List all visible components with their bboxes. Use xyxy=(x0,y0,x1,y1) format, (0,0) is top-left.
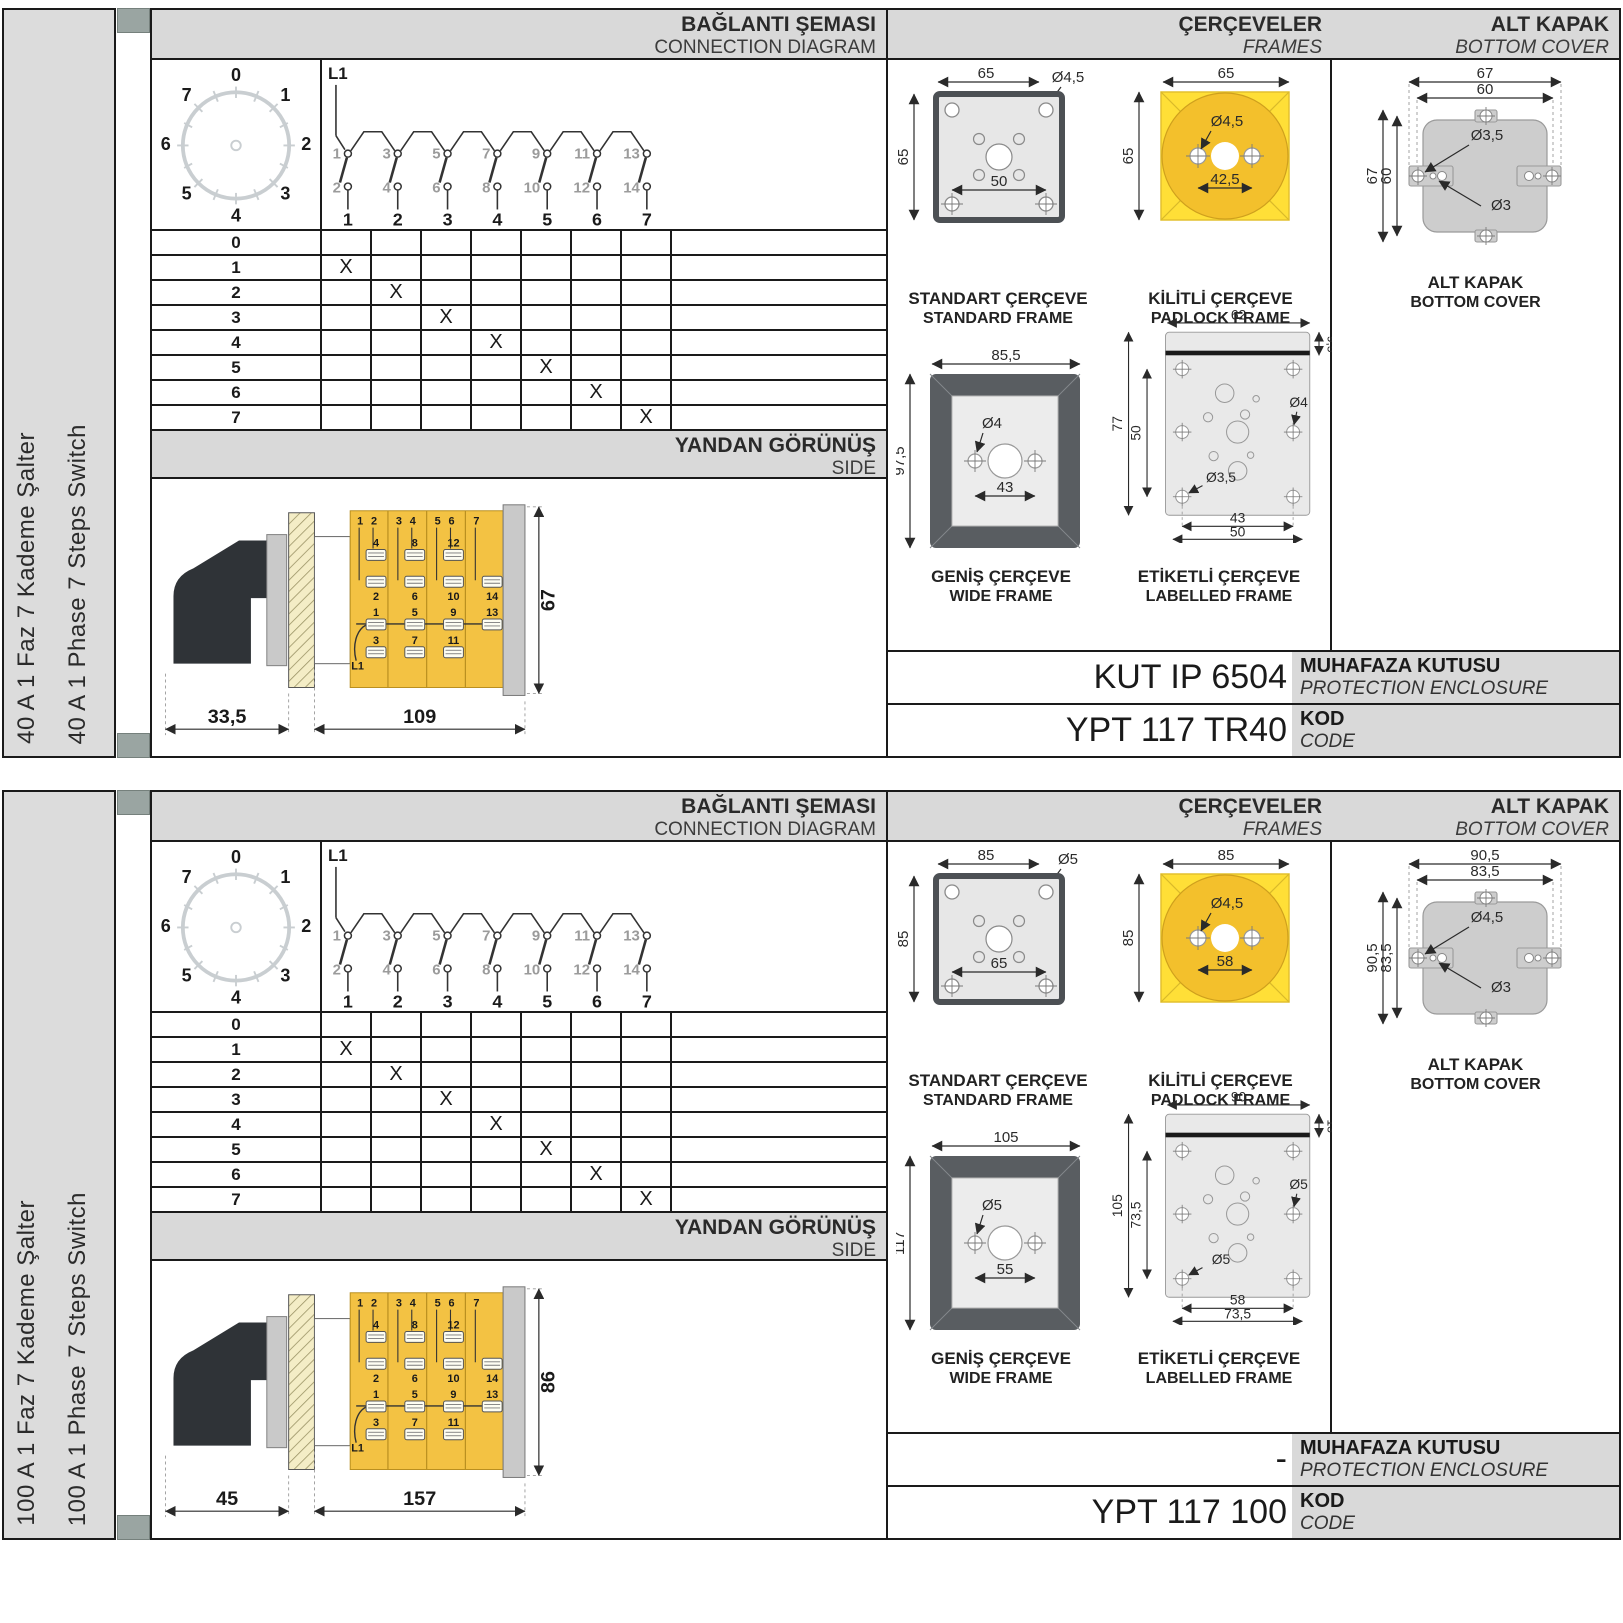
svg-text:2: 2 xyxy=(373,591,379,603)
enclosure-row: - MUHAFAZA KUTUSU PROTECTION ENCLOSURE xyxy=(888,1432,1619,1485)
svg-text:85: 85 xyxy=(896,931,912,948)
product-label-tr: 40 A 1 Faz 7 Kademe Şalter xyxy=(13,432,41,744)
standard-frame-caption: STANDART ÇERÇEVE STANDARD FRAME xyxy=(888,288,1108,328)
svg-text:3: 3 xyxy=(396,1298,402,1310)
svg-text:Ø4: Ø4 xyxy=(982,415,1002,432)
svg-text:Ø3,5: Ø3,5 xyxy=(1471,127,1504,144)
svg-text:85: 85 xyxy=(1123,930,1137,947)
svg-text:14: 14 xyxy=(486,1373,498,1385)
product-label-en: 100 A 1 Phase 7 Steps Switch xyxy=(64,1192,92,1526)
svg-text:14: 14 xyxy=(486,591,498,603)
svg-text:Ø5: Ø5 xyxy=(982,1197,1002,1214)
svg-text:65: 65 xyxy=(991,955,1008,972)
svg-text:4: 4 xyxy=(410,1298,416,1310)
table-row: 1X xyxy=(152,1036,886,1061)
svg-text:6: 6 xyxy=(592,991,602,1011)
svg-text:7: 7 xyxy=(412,1417,418,1429)
svg-text:55: 55 xyxy=(997,1261,1014,1278)
svg-text:Ø4,5: Ø4,5 xyxy=(1211,113,1244,130)
svg-text:7: 7 xyxy=(473,516,479,528)
table-row: 0 xyxy=(152,1011,886,1036)
svg-text:Ø4,5: Ø4,5 xyxy=(1211,895,1244,912)
svg-text:6: 6 xyxy=(412,591,418,603)
step-table: 0 1X 2X 3X 4X 5X 6X 7X xyxy=(152,1011,886,1211)
svg-text:2: 2 xyxy=(373,1373,379,1385)
enclosure-code: - xyxy=(888,1434,1292,1485)
table-row: 2X xyxy=(152,1061,886,1086)
svg-text:4: 4 xyxy=(382,962,391,979)
svg-text:1: 1 xyxy=(280,867,290,887)
cover-header: ALT KAPAK BOTTOM COVER xyxy=(1332,10,1619,60)
svg-text:65: 65 xyxy=(896,149,912,166)
svg-text:Ø3: Ø3 xyxy=(1491,979,1511,996)
svg-text:5: 5 xyxy=(182,184,192,204)
switch-section: 100 A 1 Faz 7 Kademe Şalter 100 A 1 Phas… xyxy=(0,790,1623,1540)
step-mark: X xyxy=(372,281,422,304)
end-cap xyxy=(503,1287,525,1478)
labelled-frame-figure: 90 13 xyxy=(1110,1092,1332,1325)
svg-text:4: 4 xyxy=(373,1320,379,1332)
svg-text:12: 12 xyxy=(573,962,590,979)
svg-text:10: 10 xyxy=(447,1373,459,1385)
svg-text:14: 14 xyxy=(623,180,640,197)
svg-text:85,5: 85,5 xyxy=(991,348,1020,364)
dim-body: 157 xyxy=(403,1488,436,1510)
svg-text:3: 3 xyxy=(396,516,402,528)
output-numbers: 1 2 3 4 5 6 7 xyxy=(343,991,652,1011)
svg-text:6: 6 xyxy=(432,180,440,197)
corner-marker xyxy=(117,790,150,815)
product-code: YPT 117 100 xyxy=(888,1487,1292,1538)
svg-text:90,5: 90,5 xyxy=(1470,850,1499,864)
circuit-chain xyxy=(336,85,644,151)
standard-frame-figure: 65 Ø4,5 xyxy=(896,66,1101,286)
svg-text:Ø4,5: Ø4,5 xyxy=(1052,69,1085,86)
svg-text:1: 1 xyxy=(357,516,363,528)
phase-label: L1 xyxy=(328,64,348,83)
svg-text:4: 4 xyxy=(410,516,416,528)
step-mark: X xyxy=(322,256,372,279)
dim-height: 67 xyxy=(538,589,560,611)
svg-text:43: 43 xyxy=(997,479,1014,496)
svg-text:9: 9 xyxy=(450,1389,456,1401)
svg-text:11: 11 xyxy=(574,146,590,163)
table-row: 4X xyxy=(152,329,886,354)
svg-text:11: 11 xyxy=(448,635,460,647)
datasheet-panel: BAĞLANTI ŞEMASI CONNECTION DIAGRAM xyxy=(150,790,1621,1540)
step-mark: X xyxy=(472,331,522,354)
datasheet-panel: BAĞLANTI ŞEMASI CONNECTION DIAGRAM xyxy=(150,8,1621,758)
side-view: L1 12 4 2 1 3 xyxy=(152,1261,886,1538)
dim-handle: 33,5 xyxy=(208,706,247,728)
svg-text:3: 3 xyxy=(443,991,453,1011)
right-columns: ÇERÇEVELER FRAMES ALT KAPAK BOTTOM COVER… xyxy=(888,792,1619,1538)
enclosure-label: MUHAFAZA KUTUSU PROTECTION ENCLOSURE xyxy=(1292,1434,1619,1485)
svg-text:1: 1 xyxy=(343,991,353,1011)
dial-cell: 0 1 2 3 4 5 6 7 xyxy=(152,60,322,229)
svg-text:7: 7 xyxy=(412,635,418,647)
svg-text:65: 65 xyxy=(978,66,995,82)
dial-cell: 0 1 2 3 4 5 6 7 xyxy=(152,842,322,1011)
svg-text:5: 5 xyxy=(542,991,552,1011)
svg-text:2: 2 xyxy=(371,1298,377,1310)
svg-text:6: 6 xyxy=(449,516,455,528)
frames-header: ÇERÇEVELER FRAMES xyxy=(888,792,1332,842)
frames-header: ÇERÇEVELER FRAMES xyxy=(888,10,1332,60)
svg-text:6: 6 xyxy=(449,1298,455,1310)
bottom-cover-caption: ALT KAPAK BOTTOM COVER xyxy=(1332,272,1619,312)
table-row: 7X xyxy=(152,404,886,429)
output-numbers: 1 2 3 4 5 6 7 xyxy=(343,209,652,229)
table-row: 5X xyxy=(152,1136,886,1161)
svg-text:13: 13 xyxy=(1324,1120,1332,1134)
svg-text:7: 7 xyxy=(473,1298,479,1310)
product-label-en: 40 A 1 Phase 7 Steps Switch xyxy=(64,424,92,744)
svg-text:58: 58 xyxy=(1217,953,1234,970)
svg-text:2: 2 xyxy=(301,916,311,936)
side-view-header: YANDAN GÖRÜNÜŞ SIDE xyxy=(152,1211,886,1261)
svg-text:4: 4 xyxy=(382,180,391,197)
table-row: 7X xyxy=(152,1186,886,1211)
svg-text:3: 3 xyxy=(373,1417,379,1429)
table-row: 3X xyxy=(152,304,886,329)
svg-text:3: 3 xyxy=(382,146,390,163)
svg-text:85: 85 xyxy=(1218,848,1235,864)
diagram-row: 0 1 2 3 4 5 6 7 L1 xyxy=(152,60,886,229)
svg-text:6: 6 xyxy=(161,134,171,154)
enclosure-label: MUHAFAZA KUTUSU PROTECTION ENCLOSURE xyxy=(1292,652,1619,703)
svg-text:Ø3: Ø3 xyxy=(1491,197,1511,214)
enclosure-row: KUT IP 6504 MUHAFAZA KUTUSU PROTECTION E… xyxy=(888,650,1619,703)
svg-text:9: 9 xyxy=(532,146,540,163)
bottom-cover-figure: 90,5 83,5 xyxy=(1357,850,1597,1050)
svg-text:Ø5: Ø5 xyxy=(1289,1176,1308,1192)
side-view-header: YANDAN GÖRÜNÜŞ SIDE xyxy=(152,429,886,479)
cover-header: ALT KAPAK BOTTOM COVER xyxy=(1332,792,1619,842)
svg-text:4: 4 xyxy=(231,205,241,225)
svg-text:4: 4 xyxy=(492,209,502,229)
svg-text:5: 5 xyxy=(182,966,192,986)
svg-text:4: 4 xyxy=(373,538,379,550)
svg-text:7: 7 xyxy=(482,928,490,945)
svg-text:9: 9 xyxy=(450,607,456,619)
phase-label: L1 xyxy=(328,846,348,865)
svg-text:105: 105 xyxy=(1110,1194,1125,1217)
svg-text:2: 2 xyxy=(393,209,403,229)
code-label: KOD CODE xyxy=(1292,705,1619,756)
right-columns: ÇERÇEVELER FRAMES ALT KAPAK BOTTOM COVER… xyxy=(888,10,1619,756)
svg-text:13: 13 xyxy=(623,146,640,163)
svg-text:1: 1 xyxy=(343,209,353,229)
svg-text:73,5: 73,5 xyxy=(1224,1306,1251,1322)
svg-text:1: 1 xyxy=(357,1298,363,1310)
dim-handle: 45 xyxy=(216,1488,238,1510)
svg-text:8: 8 xyxy=(482,962,490,979)
svg-text:7: 7 xyxy=(182,85,192,105)
svg-text:4: 4 xyxy=(231,987,241,1007)
svg-text:10: 10 xyxy=(524,180,541,197)
svg-text:65: 65 xyxy=(1123,148,1137,165)
svg-text:5: 5 xyxy=(432,928,440,945)
svg-text:Ø5: Ø5 xyxy=(1058,851,1078,868)
svg-text:11: 11 xyxy=(574,928,590,945)
svg-text:2: 2 xyxy=(393,991,403,1011)
wide-frame-figure: 85,5 Ø4 97,5 xyxy=(896,348,1106,560)
step-mark: X xyxy=(572,381,622,404)
svg-text:Ø4,5: Ø4,5 xyxy=(1471,909,1504,926)
step-mark: X xyxy=(622,1188,672,1211)
shaft xyxy=(314,537,350,664)
svg-text:9,5: 9,5 xyxy=(1324,336,1332,353)
labelled-frame-caption: ETİKETLİ ÇERÇEVE LABELLED FRAME xyxy=(1106,566,1332,606)
svg-text:13: 13 xyxy=(486,1389,498,1401)
svg-text:105: 105 xyxy=(993,1130,1018,1146)
svg-text:5: 5 xyxy=(412,1389,418,1401)
svg-text:3: 3 xyxy=(443,209,453,229)
side-view-figure: L1 12 4 2 1 3 xyxy=(152,1261,886,1540)
svg-text:7: 7 xyxy=(642,209,652,229)
svg-text:7: 7 xyxy=(642,991,652,1011)
step-mark: X xyxy=(622,406,672,429)
svg-text:77: 77 xyxy=(1110,416,1125,432)
standard-frame-caption: STANDART ÇERÇEVE STANDARD FRAME xyxy=(888,1070,1108,1110)
switch-handle xyxy=(173,1317,286,1448)
svg-text:12: 12 xyxy=(447,1320,459,1332)
product-code: YPT 117 TR40 xyxy=(888,705,1292,756)
svg-text:2: 2 xyxy=(371,516,377,528)
table-row: 3X xyxy=(152,1086,886,1111)
enclosure-code: KUT IP 6504 xyxy=(888,652,1292,703)
product-label-box: 40 A 1 Faz 7 Kademe Şalter 40 A 1 Phase … xyxy=(2,8,116,758)
corner-marker xyxy=(117,1515,150,1540)
svg-text:83,5: 83,5 xyxy=(1470,863,1499,880)
svg-text:8: 8 xyxy=(412,1320,418,1332)
end-cap xyxy=(503,505,525,696)
wide-frame-caption: GENİŞ ÇERÇEVE WIDE FRAME xyxy=(888,1348,1114,1388)
code-rows: KUT IP 6504 MUHAFAZA KUTUSU PROTECTION E… xyxy=(888,650,1619,756)
svg-text:14: 14 xyxy=(623,962,640,979)
step-mark: X xyxy=(372,1063,422,1086)
step-mark: X xyxy=(472,1113,522,1136)
svg-text:Ø4: Ø4 xyxy=(1289,394,1308,410)
switch-handle xyxy=(173,535,286,666)
svg-text:5: 5 xyxy=(542,209,552,229)
dim-body: 109 xyxy=(403,706,436,728)
wide-frame-figure: 105 Ø5 117 xyxy=(896,1130,1106,1342)
code-row: YPT 117 TR40 KOD CODE xyxy=(888,703,1619,756)
corner-marker xyxy=(117,733,150,758)
frames-body: 65 Ø4,5 xyxy=(888,60,1332,650)
cover-body: 67 60 xyxy=(1332,60,1619,650)
step-mark: X xyxy=(422,1088,472,1111)
svg-text:5: 5 xyxy=(432,146,440,163)
svg-text:12: 12 xyxy=(447,538,459,550)
svg-text:1: 1 xyxy=(333,928,341,945)
svg-text:10: 10 xyxy=(524,962,541,979)
svg-text:9: 9 xyxy=(532,928,540,945)
connection-header: BAĞLANTI ŞEMASI CONNECTION DIAGRAM xyxy=(152,792,886,842)
svg-text:90: 90 xyxy=(1231,1092,1247,1104)
bottom-cover-figure: 67 60 xyxy=(1357,68,1597,268)
table-row: 5X xyxy=(152,354,886,379)
svg-text:97,5: 97,5 xyxy=(896,446,908,475)
code-label: KOD CODE xyxy=(1292,1487,1619,1538)
svg-text:5: 5 xyxy=(435,1298,441,1310)
step-mark: X xyxy=(522,1138,572,1161)
side-view-figure: L1 12 4 2 1 3 xyxy=(152,479,886,758)
svg-text:7: 7 xyxy=(182,867,192,887)
step-mark: X xyxy=(572,1163,622,1186)
svg-text:7: 7 xyxy=(482,146,490,163)
padlock-frame-figure: 85 Ø4,5 85 xyxy=(1123,848,1323,1068)
svg-text:13: 13 xyxy=(486,607,498,619)
svg-text:5: 5 xyxy=(435,516,441,528)
svg-text:3: 3 xyxy=(280,184,290,204)
labelled-frame-figure: 62 9,5 xyxy=(1110,310,1332,543)
step-mark: X xyxy=(322,1038,372,1061)
svg-text:8: 8 xyxy=(412,538,418,550)
corner-marker xyxy=(117,8,150,33)
step-mark: X xyxy=(522,356,572,379)
phase-label: L1 xyxy=(351,1443,364,1455)
svg-text:6: 6 xyxy=(592,209,602,229)
step-mark: X xyxy=(422,306,472,329)
switch-section: 40 A 1 Faz 7 Kademe Şalter 40 A 1 Phase … xyxy=(0,8,1623,758)
svg-text:13: 13 xyxy=(623,928,640,945)
svg-text:8: 8 xyxy=(482,180,490,197)
cover-body: 90,5 83,5 xyxy=(1332,842,1619,1432)
connection-header-tr: BAĞLANTI ŞEMASI xyxy=(152,10,876,37)
svg-text:6: 6 xyxy=(161,916,171,936)
svg-text:2: 2 xyxy=(333,180,341,197)
svg-text:Ø3,5: Ø3,5 xyxy=(1206,469,1236,485)
connection-header-en: CONNECTION DIAGRAM xyxy=(152,819,876,840)
svg-text:60: 60 xyxy=(1378,168,1395,185)
svg-text:117: 117 xyxy=(896,1231,908,1255)
connection-header-tr: BAĞLANTI ŞEMASI xyxy=(152,792,876,819)
table-row: 2X xyxy=(152,279,886,304)
side-view: L1 12 4 2 1 3 xyxy=(152,479,886,756)
svg-text:3: 3 xyxy=(280,966,290,986)
circuit-figure: L1 xyxy=(322,60,886,229)
svg-text:11: 11 xyxy=(448,1417,460,1429)
svg-text:42,5: 42,5 xyxy=(1210,171,1239,188)
circuit-figure: L1 xyxy=(322,842,886,1011)
svg-text:1: 1 xyxy=(333,146,341,163)
svg-text:3: 3 xyxy=(373,635,379,647)
table-row: 1X xyxy=(152,254,886,279)
circuit-cell: L1 xyxy=(322,842,886,1011)
code-rows: - MUHAFAZA KUTUSU PROTECTION ENCLOSURE Y… xyxy=(888,1432,1619,1538)
product-label-box: 100 A 1 Faz 7 Kademe Şalter 100 A 1 Phas… xyxy=(2,790,116,1540)
svg-text:1: 1 xyxy=(373,1389,379,1401)
rotary-dial-figure: 0 1 2 3 4 5 6 7 xyxy=(152,842,320,1011)
standard-frame-figure: 85 Ø5 xyxy=(896,848,1101,1068)
svg-text:83,5: 83,5 xyxy=(1378,943,1395,972)
table-row: 0 xyxy=(152,229,886,254)
step-table: 0 1X 2X 3X 4X 5X 6X 7X xyxy=(152,229,886,429)
svg-text:60: 60 xyxy=(1477,81,1494,98)
labelled-frame-caption: ETİKETLİ ÇERÇEVE LABELLED FRAME xyxy=(1106,1348,1332,1388)
svg-text:1: 1 xyxy=(373,607,379,619)
svg-text:12: 12 xyxy=(573,180,590,197)
svg-text:65: 65 xyxy=(1218,66,1235,82)
svg-text:73,5: 73,5 xyxy=(1128,1201,1144,1228)
connection-column: BAĞLANTI ŞEMASI CONNECTION DIAGRAM xyxy=(152,10,888,756)
shaft xyxy=(314,1319,350,1446)
mounting-plate xyxy=(289,1295,315,1470)
dim-height: 86 xyxy=(538,1371,560,1393)
frames-body: 85 Ø5 xyxy=(888,842,1332,1432)
code-row: YPT 117 100 KOD CODE xyxy=(888,1485,1619,1538)
svg-text:0: 0 xyxy=(231,847,241,867)
padlock-frame-figure: 65 Ø4,5 65 xyxy=(1123,66,1323,286)
svg-text:5: 5 xyxy=(412,607,418,619)
svg-text:10: 10 xyxy=(447,591,459,603)
phase-label: L1 xyxy=(351,661,364,673)
connection-header-en: CONNECTION DIAGRAM xyxy=(152,37,876,58)
circuit-cell: L1 xyxy=(322,60,886,229)
svg-text:50: 50 xyxy=(991,173,1008,190)
circuit-chain xyxy=(336,867,644,933)
svg-text:0: 0 xyxy=(231,65,241,85)
diagram-row: 0 1 2 3 4 5 6 7 L1 xyxy=(152,842,886,1011)
table-row: 4X xyxy=(152,1111,886,1136)
svg-text:6: 6 xyxy=(432,962,440,979)
table-row: 6X xyxy=(152,1161,886,1186)
svg-text:6: 6 xyxy=(412,1373,418,1385)
svg-text:62: 62 xyxy=(1231,310,1247,322)
svg-text:85: 85 xyxy=(978,848,995,864)
table-row: 6X xyxy=(152,379,886,404)
bottom-cover-caption: ALT KAPAK BOTTOM COVER xyxy=(1332,1054,1619,1094)
svg-text:3: 3 xyxy=(382,928,390,945)
connection-column: BAĞLANTI ŞEMASI CONNECTION DIAGRAM xyxy=(152,792,888,1538)
svg-text:2: 2 xyxy=(333,962,341,979)
svg-text:4: 4 xyxy=(492,991,502,1011)
svg-text:1: 1 xyxy=(280,85,290,105)
product-label-tr: 100 A 1 Faz 7 Kademe Şalter xyxy=(13,1200,41,1526)
svg-text:50: 50 xyxy=(1230,524,1246,540)
svg-text:50: 50 xyxy=(1128,425,1144,441)
wide-frame-caption: GENİŞ ÇERÇEVE WIDE FRAME xyxy=(888,566,1114,606)
svg-text:2: 2 xyxy=(301,134,311,154)
connection-header: BAĞLANTI ŞEMASI CONNECTION DIAGRAM xyxy=(152,10,886,60)
mounting-plate xyxy=(289,513,315,688)
svg-text:67: 67 xyxy=(1477,68,1494,82)
rotary-dial-figure: 0 1 2 3 4 5 6 7 xyxy=(152,60,320,229)
svg-text:Ø5: Ø5 xyxy=(1212,1251,1231,1267)
